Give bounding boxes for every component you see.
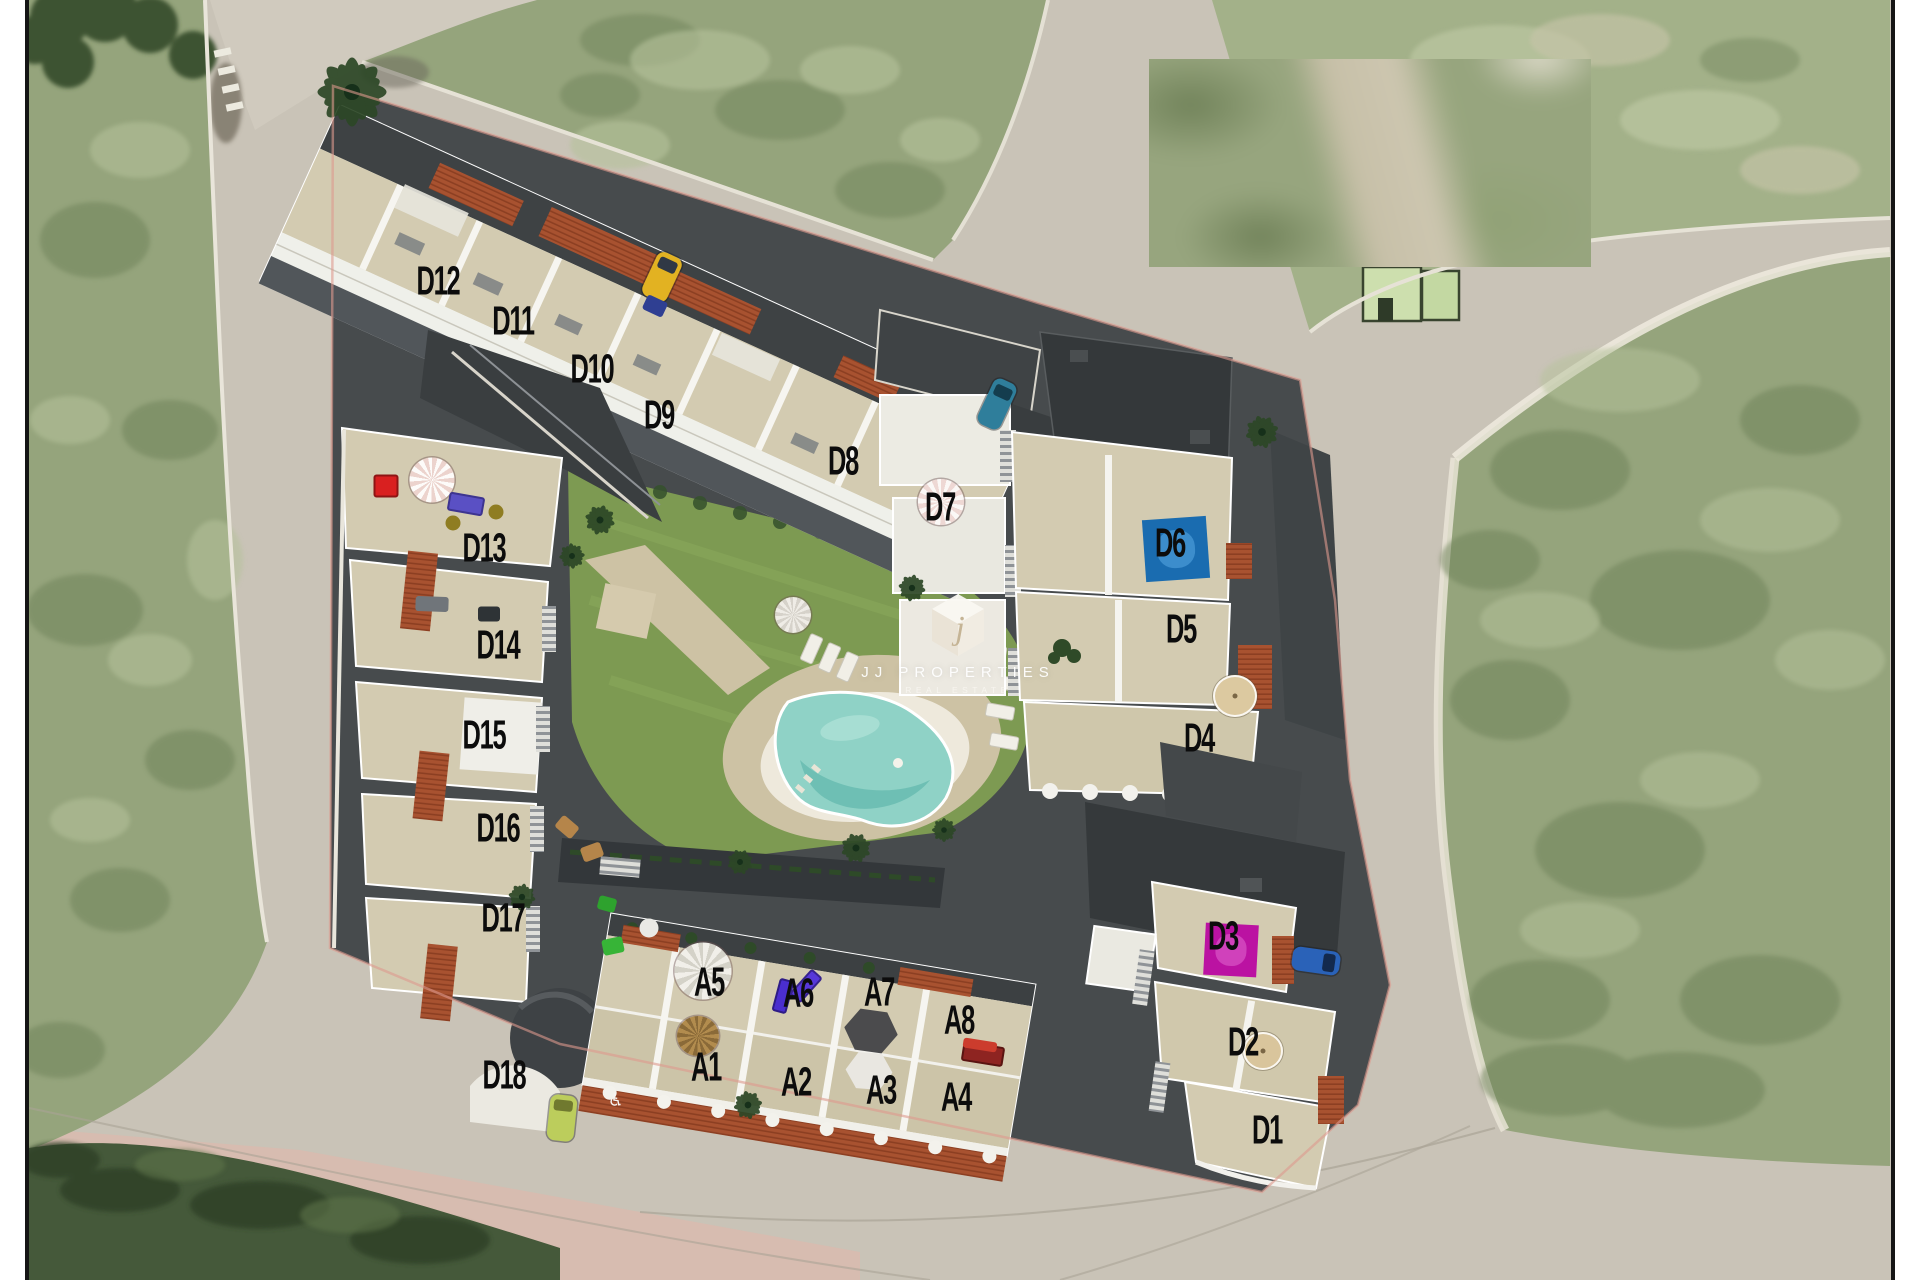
unit-label-A8: A8	[944, 997, 974, 1044]
unit-label-D5: D5	[1166, 606, 1196, 653]
unit-label-D9: D9	[644, 392, 674, 439]
unit-label-D8: D8	[828, 438, 858, 485]
frame-right-margin	[1895, 0, 1920, 1280]
unit-label-A7: A7	[864, 969, 894, 1016]
unit-label-D18: D18	[483, 1052, 526, 1099]
unit-label-D4: D4	[1184, 715, 1214, 762]
unit-label-D10: D10	[571, 346, 614, 393]
unit-label-A6: A6	[783, 970, 813, 1017]
unit-label-D12: D12	[417, 258, 460, 305]
frame-left-line	[25, 0, 29, 1280]
unit-label-A1: A1	[691, 1044, 721, 1091]
unit-label-D2: D2	[1228, 1019, 1258, 1066]
unit-label-A3: A3	[866, 1067, 896, 1114]
unit-label-A2: A2	[781, 1059, 811, 1106]
unit-label-D14: D14	[477, 622, 520, 669]
unit-label-D13: D13	[463, 525, 506, 572]
unit-label-D6: D6	[1155, 520, 1185, 567]
unit-label-D17: D17	[482, 895, 525, 942]
unit-label-D1: D1	[1252, 1107, 1282, 1154]
unit-label-D15: D15	[463, 712, 506, 759]
unit-label-A5: A5	[694, 959, 724, 1006]
unit-label-D7: D7	[925, 484, 955, 531]
unit-label-D16: D16	[477, 805, 520, 852]
frame-left-margin	[0, 0, 25, 1280]
unit-label-D3: D3	[1208, 913, 1238, 960]
site-plan-screenshot: ♿ D12D11D10D9D8D7D6D5D4D3D2D1D13D14D15D1…	[0, 0, 1920, 1280]
unit-label-D11: D11	[492, 298, 534, 345]
unit-label-A4: A4	[941, 1074, 971, 1121]
unit-labels: D12D11D10D9D8D7D6D5D4D3D2D1D13D14D15D16D…	[0, 0, 1920, 1280]
